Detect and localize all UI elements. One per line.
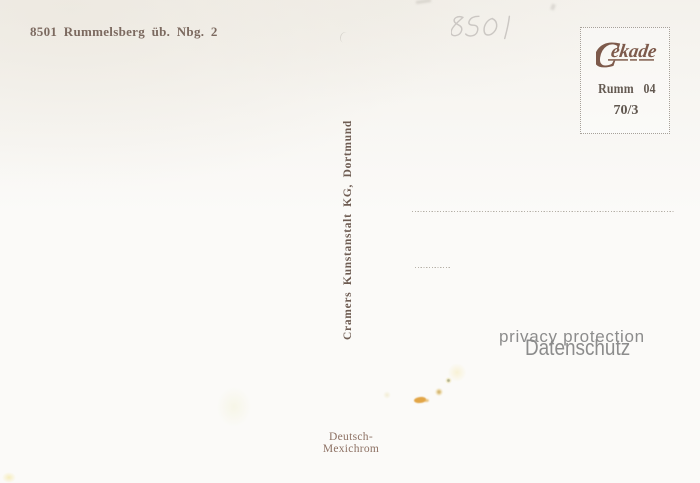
svg-text:ekade: ekade — [610, 41, 659, 62]
